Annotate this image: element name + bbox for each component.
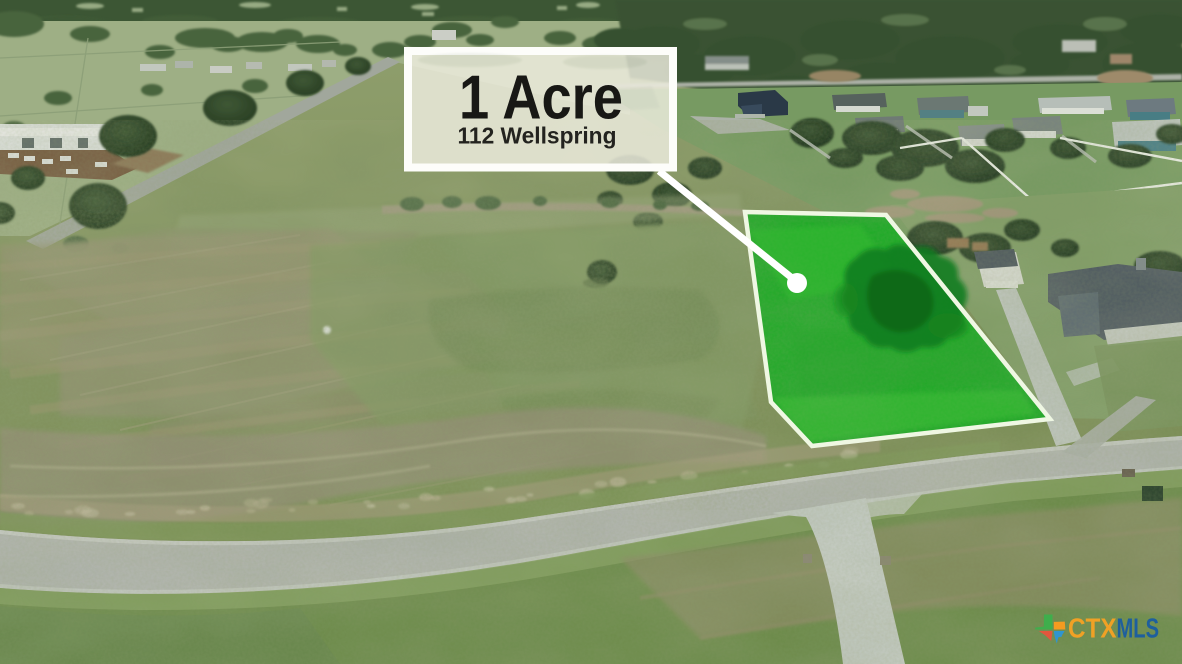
svg-text:112 Wellspring: 112 Wellspring [458,123,617,149]
svg-text:CTX: CTX [1068,613,1117,644]
svg-text:MLS: MLS [1117,613,1160,644]
